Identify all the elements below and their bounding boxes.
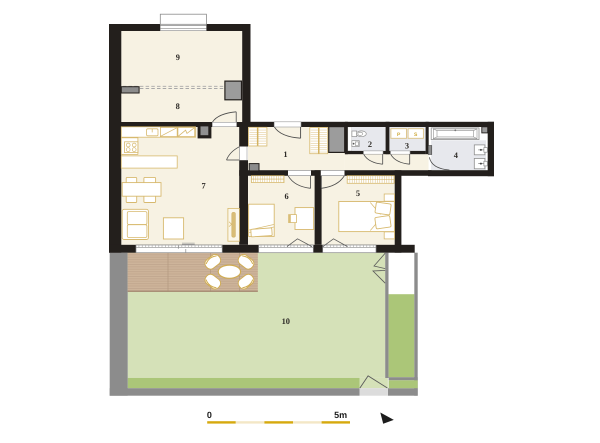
svg-text:1: 1 [283,150,287,159]
svg-text:5: 5 [356,189,360,198]
svg-text:3: 3 [405,141,409,150]
svg-text:8: 8 [176,102,180,111]
svg-text:5m: 5m [334,410,347,420]
svg-text:0: 0 [207,410,212,420]
svg-text:9: 9 [176,53,180,62]
svg-text:10: 10 [282,317,290,326]
svg-text:7: 7 [202,181,206,190]
svg-text:6: 6 [285,192,289,201]
svg-text:2: 2 [368,140,372,149]
